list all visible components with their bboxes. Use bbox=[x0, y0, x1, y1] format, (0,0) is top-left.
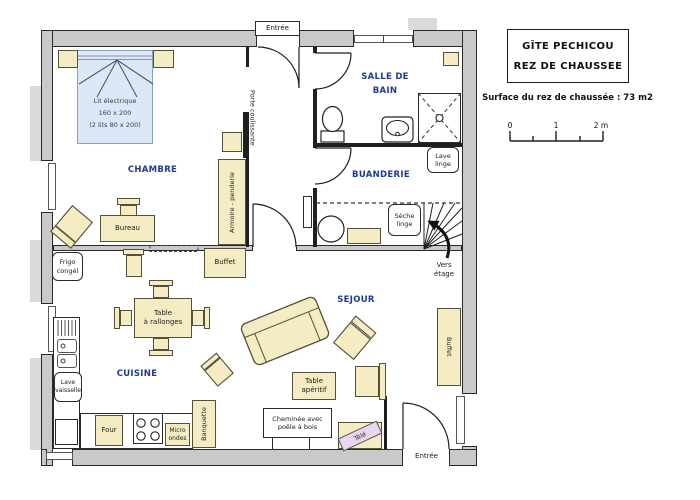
microwave-label: Micro ondes bbox=[168, 427, 186, 443]
sink-basin bbox=[57, 339, 77, 353]
floor-plan-page: Lit électrique 160 x 200 (2 lits 80 x 20… bbox=[0, 0, 700, 500]
chair-seat bbox=[126, 255, 142, 277]
room-label-sejour: SEJOUR bbox=[326, 295, 386, 306]
bench-label: Banquette bbox=[200, 407, 208, 441]
wall-chambre-right bbox=[246, 158, 249, 247]
wall-divider bbox=[296, 245, 462, 251]
window-right-sejour bbox=[456, 396, 465, 444]
cooktop bbox=[133, 413, 163, 444]
sideboard-sejour: Buffet bbox=[437, 308, 461, 386]
room-label-buanderie: BUANDERIE bbox=[343, 170, 419, 181]
scale-0: 0 bbox=[508, 121, 513, 130]
dining-chair-seat bbox=[120, 310, 132, 326]
surface-note: Surface du rez de chaussée : 73 m2 bbox=[480, 92, 655, 104]
fireplace-hearth bbox=[272, 437, 310, 450]
dining-chair-seat bbox=[153, 338, 169, 350]
wall-chambre-right bbox=[246, 47, 249, 67]
scale-1: 1 bbox=[554, 121, 559, 130]
water-heater-icon bbox=[318, 216, 344, 242]
fridge-freezer: Frigo congél bbox=[52, 252, 83, 281]
title-block: GÎTE PECHICOU REZ DE CHAUSSEE bbox=[507, 29, 629, 83]
scale-2m: 2 m bbox=[594, 121, 608, 130]
nightstand-right bbox=[153, 50, 174, 68]
coffee-table-label: Table apéritif bbox=[301, 377, 326, 395]
wall-bathroom-buanderie bbox=[313, 143, 462, 147]
wall-left bbox=[41, 30, 53, 161]
title-line2: REZ DE CHAUSSEE bbox=[514, 61, 623, 72]
armchair-rotated bbox=[334, 316, 376, 359]
washing-machine: Lave linge bbox=[427, 147, 459, 173]
wall-buanderie-left bbox=[313, 188, 317, 247]
wardrobe-label: Armoire - penderie bbox=[228, 172, 236, 233]
tv-stand bbox=[338, 422, 382, 449]
window-left-chambre bbox=[48, 163, 56, 210]
desk-label: Bureau bbox=[115, 224, 140, 233]
sliding-door-label: Porte coulissante bbox=[248, 90, 256, 146]
fridge-label: Frigo congél bbox=[57, 258, 79, 275]
sink-basin bbox=[57, 354, 77, 368]
washing-machine-label: Lave linge bbox=[435, 152, 451, 169]
bathroom-shelf bbox=[443, 52, 459, 66]
dining-table: Table à rallonges bbox=[134, 298, 192, 338]
wall-stub-sejour bbox=[384, 396, 387, 449]
toilet-icon bbox=[321, 107, 344, 143]
wall-bathroom-left bbox=[313, 47, 317, 53]
side-table bbox=[222, 132, 242, 152]
room-label-salle-de-bain: SALLE DE BAIN bbox=[353, 71, 417, 99]
entrance-bottom-label: Entrée bbox=[404, 450, 449, 464]
window-top bbox=[354, 35, 413, 43]
wall-top bbox=[299, 30, 354, 47]
sideboard-sejour-label: Buffet bbox=[445, 337, 453, 357]
scale-bar bbox=[510, 131, 603, 141]
armchair-back bbox=[379, 363, 386, 400]
wardrobe: Armoire - penderie bbox=[218, 159, 246, 245]
entrance-top-text: Entrée bbox=[266, 24, 289, 33]
entrance-bottom-text: Entrée bbox=[415, 452, 438, 461]
bed-label: Lit électrique 160 x 200 (2 lits 80 x 20… bbox=[77, 91, 153, 135]
stairs-icon bbox=[424, 203, 462, 249]
to-upstairs-label: Vers étage bbox=[424, 256, 464, 284]
shower bbox=[418, 93, 461, 143]
armchair-seat bbox=[355, 366, 379, 397]
sofa bbox=[240, 296, 331, 367]
dining-chair-seat bbox=[153, 286, 169, 298]
dining-table-label: Table à rallonges bbox=[144, 309, 183, 327]
wall-bottom bbox=[72, 449, 403, 466]
dining-chair-back bbox=[149, 350, 173, 356]
dining-chair-back bbox=[204, 307, 210, 329]
wall-top bbox=[41, 30, 257, 47]
sideboard-kitchen-label: Buffet bbox=[214, 258, 235, 267]
dryer: Sèche linge bbox=[388, 204, 421, 236]
dishwasher-label: Lave vaisselle bbox=[55, 379, 81, 395]
buanderie-bench bbox=[347, 228, 381, 244]
chambre-chair bbox=[51, 206, 92, 248]
window-bottom-left bbox=[46, 452, 73, 460]
radiator bbox=[303, 196, 312, 228]
sideboard-kitchen: Buffet bbox=[204, 248, 246, 278]
outer-wall-block bbox=[30, 358, 41, 450]
oven: Four bbox=[95, 415, 123, 446]
sliding-door-caption: Porte coulissante bbox=[246, 80, 259, 156]
desk-chair-back bbox=[117, 198, 140, 205]
outer-wall-block bbox=[30, 240, 41, 302]
title-line1: GÎTE PECHICOU bbox=[522, 41, 614, 52]
desk: Bureau bbox=[100, 215, 155, 242]
cabinet bbox=[55, 419, 78, 445]
nightstand-left bbox=[58, 50, 78, 68]
fireplace-label: Cheminée avec poêle à bois bbox=[264, 410, 331, 436]
oven-label: Four bbox=[101, 426, 116, 435]
room-label-chambre: CHAMBRE bbox=[120, 165, 185, 176]
room-label-cuisine: CUISINE bbox=[107, 369, 167, 380]
outer-wall-block bbox=[408, 18, 437, 30]
entrance-top-label: Entrée bbox=[255, 21, 300, 36]
wall-bathroom-left bbox=[313, 89, 317, 148]
stool-rotated bbox=[201, 353, 233, 386]
dryer-label: Sèche linge bbox=[395, 212, 415, 229]
bench: Banquette bbox=[192, 400, 216, 448]
scale-labels: 0 1 2 m bbox=[508, 121, 609, 130]
wall-right bbox=[462, 30, 477, 394]
dining-chair-seat bbox=[192, 310, 204, 326]
outer-wall-block bbox=[30, 86, 41, 161]
wall-bottom bbox=[449, 449, 477, 466]
coffee-table: Table apéritif bbox=[292, 372, 336, 400]
microwave: Micro ondes bbox=[165, 423, 190, 446]
dishwasher: Lave vaisselle bbox=[54, 372, 82, 402]
sink-icon bbox=[382, 117, 413, 142]
upstairs-arrow bbox=[430, 222, 449, 258]
